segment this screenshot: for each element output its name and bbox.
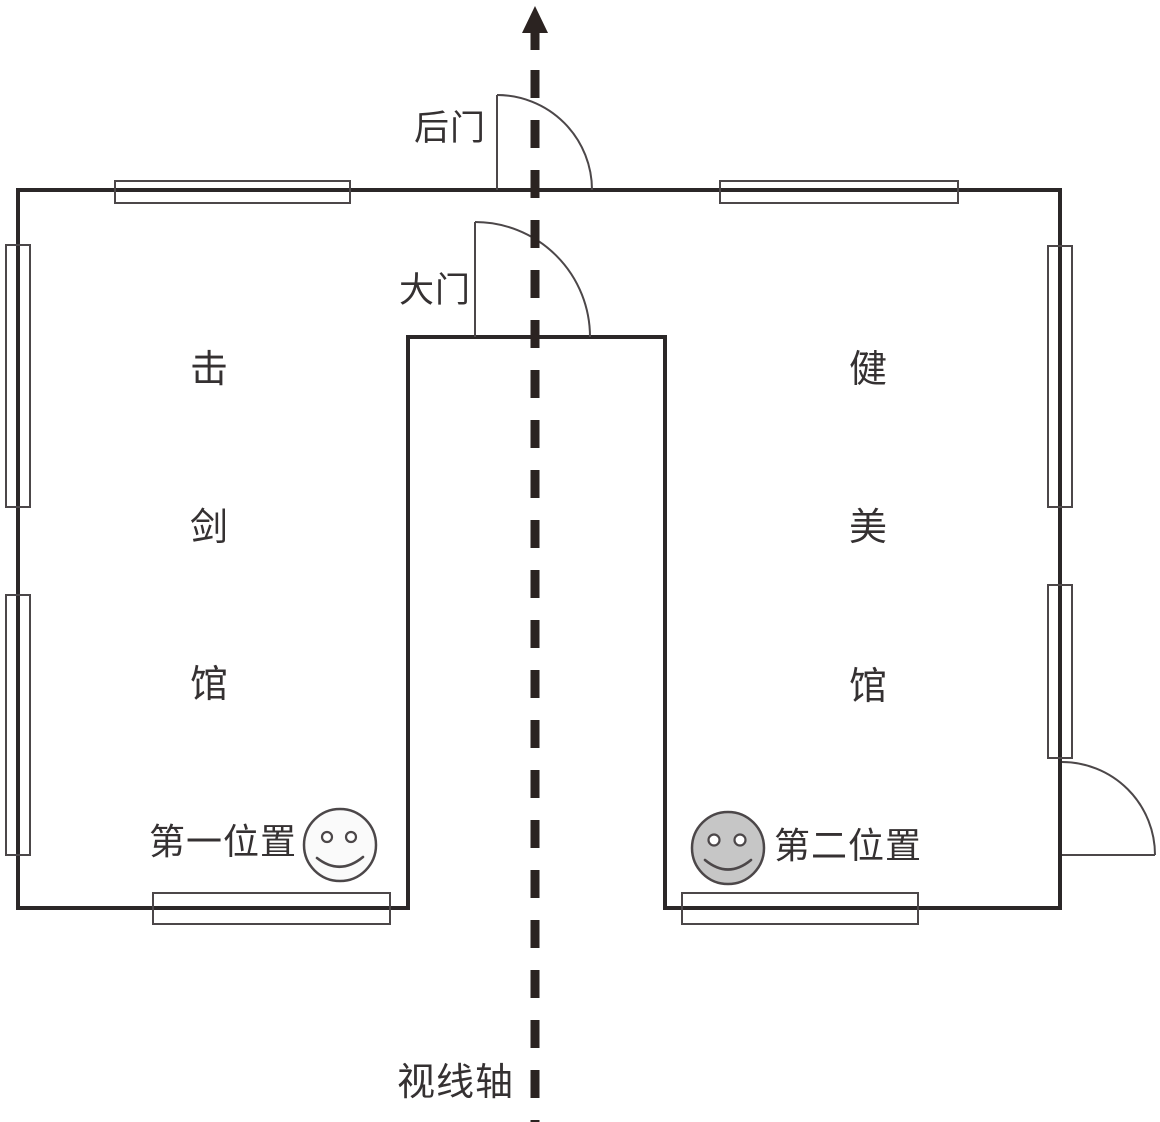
sight-axis [522, 6, 548, 1122]
first-position-label: 第一位置 [149, 822, 297, 862]
back-door-swing-arc [497, 95, 592, 190]
smiley-right-eye [346, 832, 356, 842]
back-door-label: 后门 [414, 110, 486, 149]
smiley-head [304, 809, 376, 881]
left-room-char-3: 馆 [190, 666, 228, 704]
back-door-symbol [497, 95, 592, 190]
floor-plan-drawing [0, 0, 1160, 1122]
smiley-head [692, 812, 764, 884]
right-room-char-2: 美 [849, 509, 887, 547]
main-door-label: 大门 [399, 272, 471, 311]
sight-axis-label: 视线轴 [397, 1063, 514, 1105]
first-position-smiley-icon [304, 809, 376, 881]
side-door-symbol [1062, 762, 1155, 855]
smiley-left-eye [322, 832, 332, 842]
second-position-smiley-icon [692, 812, 764, 884]
smiley-right-eye [735, 835, 746, 846]
side-door-swing-arc [1062, 762, 1155, 855]
left-room-char-2: 剑 [190, 509, 228, 547]
right-room-char-3: 馆 [849, 668, 887, 706]
sight-axis-arrowhead-icon [522, 6, 548, 33]
second-position-label: 第二位置 [774, 826, 922, 866]
smiley-left-eye [709, 835, 720, 846]
floor-plan-diagram: 后门 大门 击 剑 馆 健 美 馆 第一位置 第二位置 视线轴 [0, 0, 1160, 1122]
right-room-char-1: 健 [849, 351, 887, 389]
left-room-char-1: 击 [190, 351, 228, 389]
